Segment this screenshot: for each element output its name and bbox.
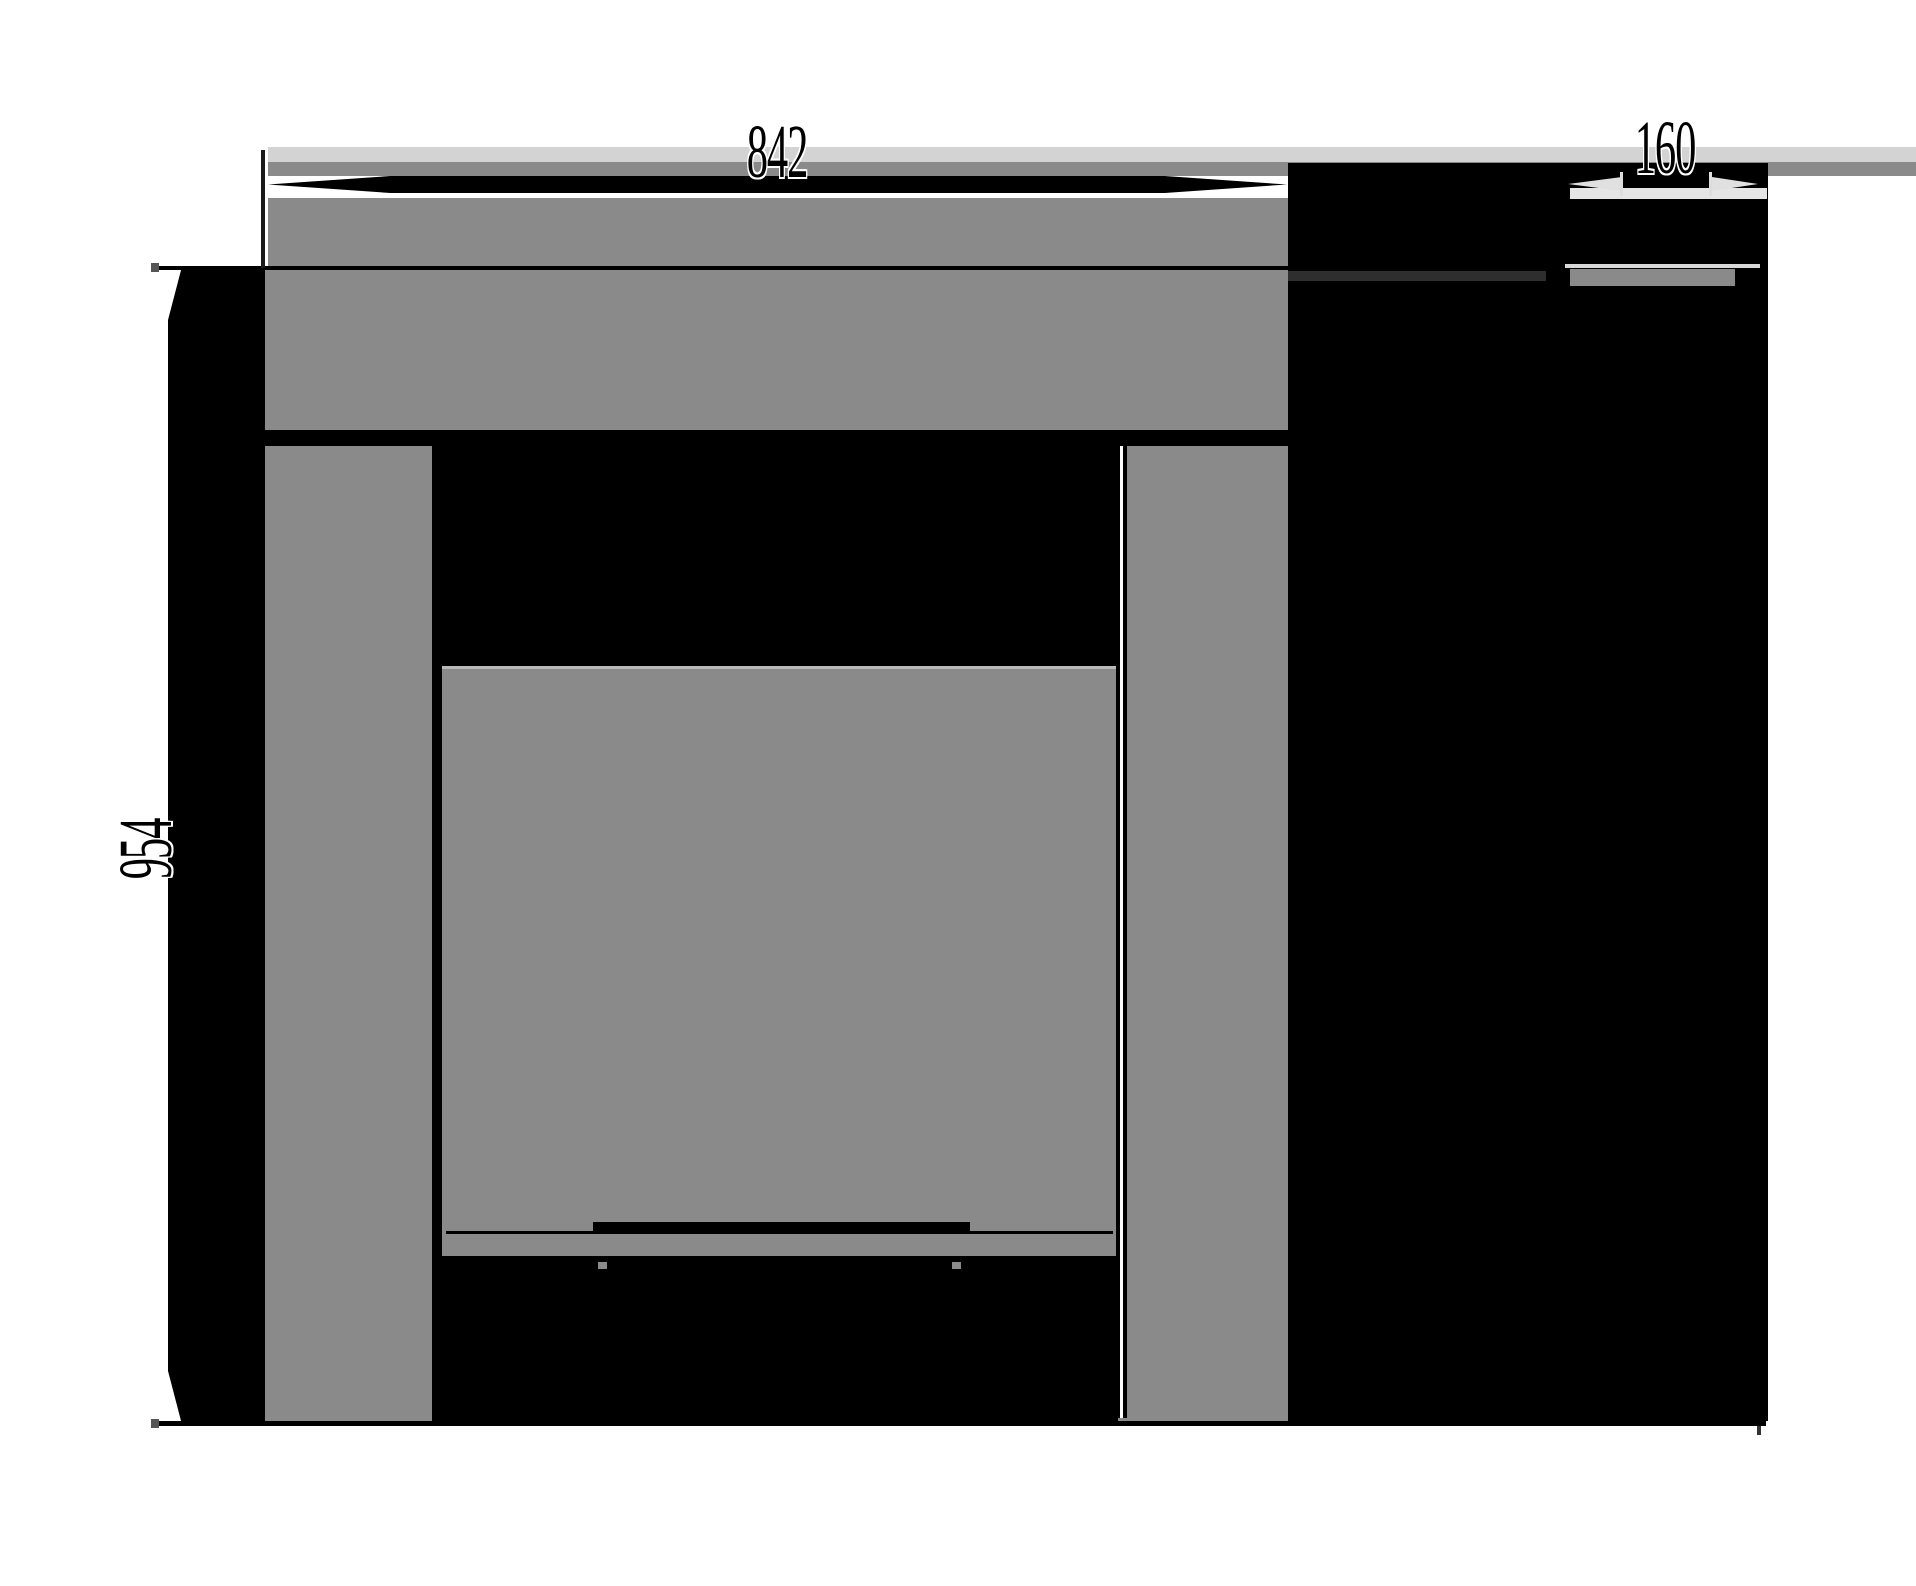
- depth-extension-tick-left: [1620, 172, 1623, 196]
- base-dot-left: [598, 1262, 607, 1269]
- right-leg: [1118, 446, 1288, 1421]
- insert-bottom-slot: [593, 1222, 970, 1231]
- floor-line: [152, 1421, 1766, 1426]
- insert-bottom-line: [446, 1231, 1113, 1234]
- mantel-frieze: [265, 270, 1288, 430]
- depth-dimension-label: 160: [1629, 112, 1702, 184]
- side-leg-top-band: [1570, 269, 1735, 286]
- mantel-underside-band: [262, 430, 1288, 446]
- side-profile-body: [1288, 163, 1768, 1421]
- dimension-drawing: 842 954 160: [0, 0, 1916, 1586]
- width-dimension-label: 842: [741, 116, 814, 188]
- floor-line-end-tick-left: [151, 1419, 159, 1428]
- depth-extension-tick-right: [1709, 172, 1712, 196]
- side-leg-top-line: [1565, 264, 1760, 268]
- mantel-shelf-top: [268, 198, 1288, 266]
- floor-line-end-tick-right: [1757, 1426, 1761, 1435]
- right-leg-inner-line-inner: [1123, 446, 1127, 1418]
- extension-line-end-tick-top: [151, 263, 159, 272]
- side-shelf-shadow-band: [1288, 271, 1546, 281]
- base-dot-right: [952, 1262, 961, 1269]
- insert-panel: [442, 666, 1116, 1256]
- insert-panel-top-highlight: [442, 666, 1116, 669]
- base-panel: [440, 1256, 1118, 1421]
- height-dimension-label: 954: [110, 804, 182, 894]
- left-leg: [263, 446, 432, 1421]
